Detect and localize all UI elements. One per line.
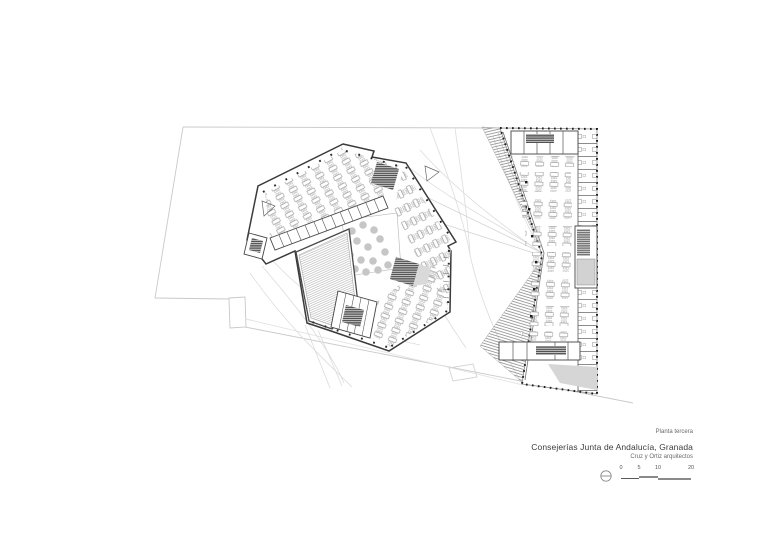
scale-segment-0-5 xyxy=(621,478,639,479)
scale-bar: 0 5 10 20 xyxy=(596,464,698,488)
right-building-top-rooms xyxy=(511,131,578,154)
architects-credit: Cruz y Ortiz arquitectos xyxy=(531,454,693,461)
right-building-mid-core xyxy=(575,226,597,288)
scale-segment-5-10 xyxy=(639,476,658,478)
compass-icon xyxy=(596,467,618,485)
right-building xyxy=(480,127,597,394)
drawing-sheet: Planta tercera Consejerías Junta de Anda… xyxy=(0,0,780,536)
project-title: Consejerías Junta de Andalucía, Granada xyxy=(531,443,693,452)
scale-tick-0: 0 xyxy=(619,465,622,471)
scale-tick-10: 10 xyxy=(655,465,661,471)
scale-tick-20: 20 xyxy=(688,465,694,471)
plan-label: Planta tercera xyxy=(531,429,693,436)
scale-tick-5: 5 xyxy=(637,465,640,471)
main-building xyxy=(244,144,456,351)
title-block: Planta tercera Consejerías Junta de Anda… xyxy=(531,429,693,461)
scale-segment-10-20 xyxy=(658,478,691,480)
